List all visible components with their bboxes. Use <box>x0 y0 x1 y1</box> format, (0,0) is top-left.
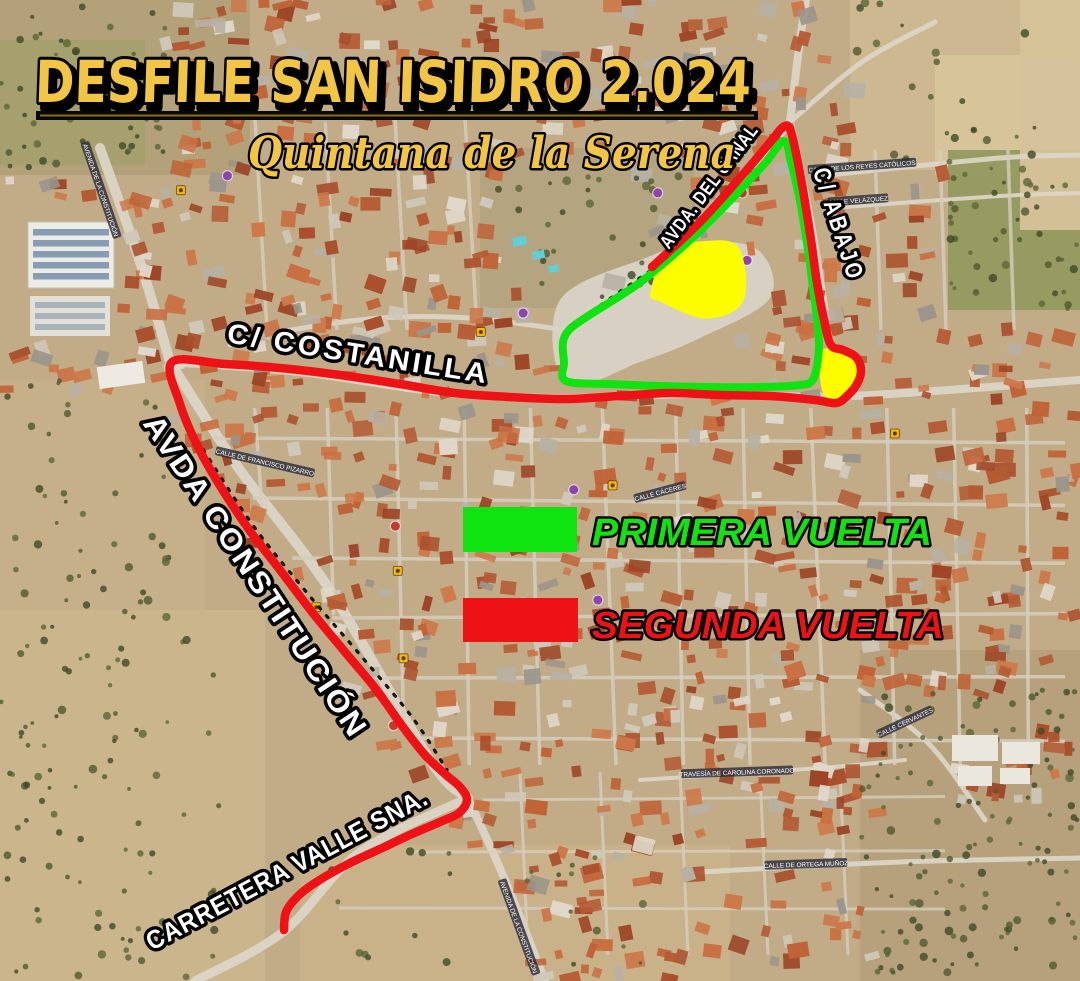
title-underline-inner <box>40 115 754 117</box>
poster-title: DESFILE SAN ISIDRO 2.024 <box>34 48 752 116</box>
svg-text:CALLE CÁCERES: CALLE CÁCERES <box>633 481 686 503</box>
route-overlay: AVENIDA DE LA CONSTITUCIÓNCALLE DE FRANC… <box>0 0 1080 981</box>
legend: PRIMERA VUELTA SEGUNDA VUELTA <box>463 507 944 647</box>
legend-swatch-segunda <box>463 598 578 642</box>
map-street-banner: TRAVESÍA DE CAROLINA CORONADO <box>679 765 794 778</box>
parade-route-poster: AVENIDA DE LA CONSTITUCIÓNCALLE DE FRANC… <box>0 0 1080 981</box>
svg-text:CALLE DE FRANCISCO PIZARRO: CALLE DE FRANCISCO PIZARRO <box>215 448 315 477</box>
svg-text:CALLE CERVANTES: CALLE CERVANTES <box>877 707 935 739</box>
dashed-guide-constitucion-side <box>197 440 447 770</box>
highlight-areas <box>651 242 860 400</box>
map-street-banner: AVENIDA DE LA CONSTITUCIÓN <box>80 141 122 240</box>
svg-text:AVENIDA DE LA CONSTITUCIÓN: AVENIDA DE LA CONSTITUCIÓN <box>81 142 121 238</box>
map-street-banner: AVENIDA DE LA CONSTITUCIÓN <box>497 878 540 976</box>
poster-subtitle: Quintana de la Serena <box>248 128 736 179</box>
poster-header: DESFILE SAN ISIDRO 2.024 DESFILE SAN ISI… <box>34 48 758 179</box>
legend-label-segunda: SEGUNDA VUELTA <box>592 605 944 647</box>
map-street-banner: CALLE DE FRANCISCO PIZARRO <box>215 446 316 478</box>
legend-swatch-primera <box>463 507 577 552</box>
map-street-banner: CALLE DE ORTEGA MUÑOZ <box>764 858 849 870</box>
svg-text:AVENIDA DE LA CONSTITUCIÓN: AVENIDA DE LA CONSTITUCIÓN <box>498 880 540 975</box>
map-street-banner: CALLE CERVANTES <box>876 705 935 739</box>
map-street-banner: CALLE CÁCERES <box>633 481 687 504</box>
legend-label-primera: PRIMERA VUELTA <box>592 512 932 554</box>
